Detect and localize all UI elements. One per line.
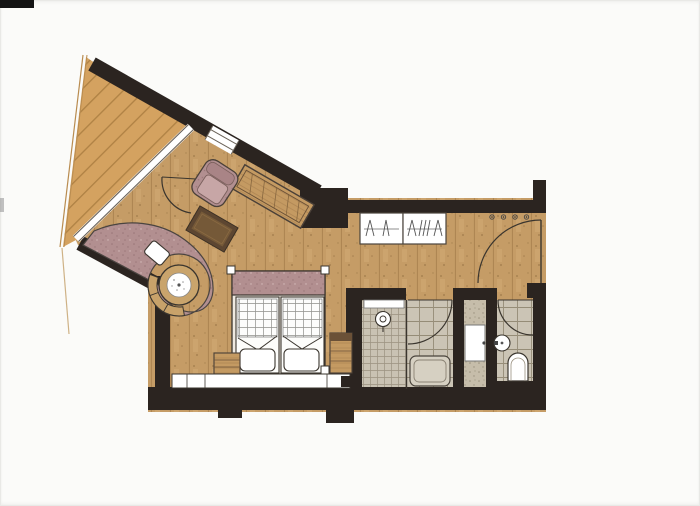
double-bed (227, 266, 329, 374)
scan-mark-left-edge (0, 198, 4, 212)
floor-plan-svg (0, 0, 700, 506)
bed-pillow-right (284, 349, 319, 371)
toilet-icon (508, 353, 528, 381)
wardrobe (360, 213, 446, 244)
shower-top-wall (362, 288, 406, 300)
nightstand-left (214, 353, 240, 374)
duvet-right (283, 299, 322, 337)
nightstand-right (330, 333, 352, 373)
basin-tap (482, 341, 485, 344)
duvet-left (238, 299, 277, 337)
entry-jamb (527, 283, 546, 298)
scan-mark-top-left (0, 0, 34, 8)
bed-pillow-left (240, 349, 275, 371)
headboard-ledge (172, 374, 351, 388)
bed-foot-upholstery (232, 271, 325, 295)
bottom-wall-under-wc (494, 381, 546, 409)
niche-top-wall (453, 288, 497, 300)
bottom-wall (148, 387, 546, 410)
vanity-niche (465, 325, 486, 361)
washbasin (465, 325, 485, 361)
top-wall (318, 200, 546, 213)
bath-niche-wall (453, 300, 464, 390)
corner-sink-icon (494, 335, 510, 351)
entry-stub-wall (533, 180, 546, 202)
scanned-floor-plan-page (0, 0, 700, 506)
bottom-wall-bump-mid (326, 410, 354, 423)
right-wall (533, 283, 546, 390)
bottom-wall-bump-left (218, 410, 242, 418)
shower-bench (364, 300, 404, 308)
